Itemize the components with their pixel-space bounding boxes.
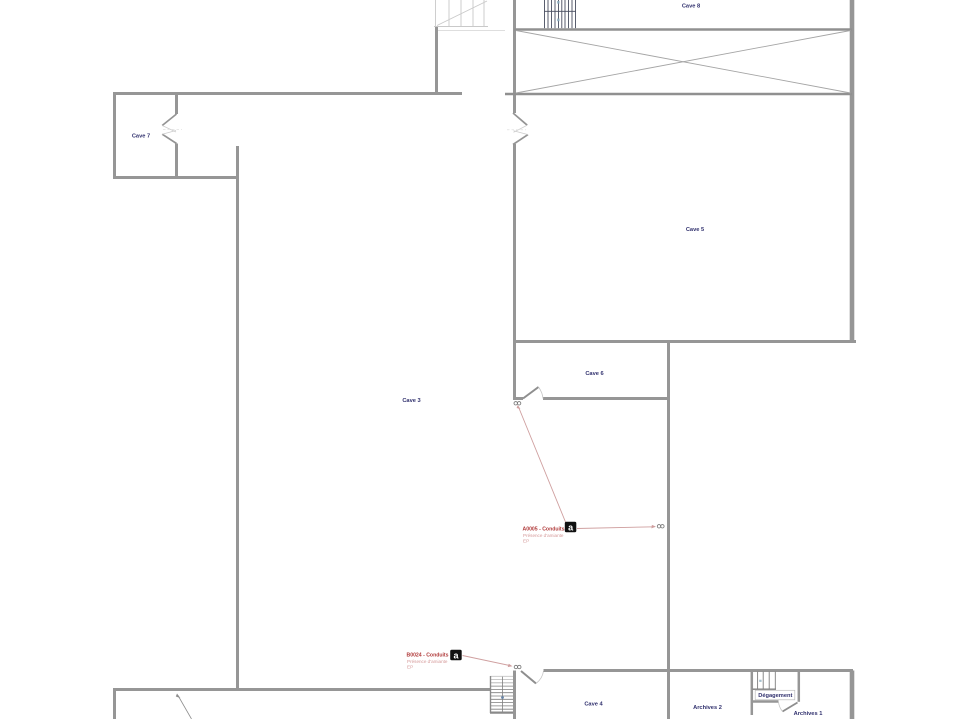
svg-text:EP: EP xyxy=(407,665,413,670)
svg-text:Cave 8: Cave 8 xyxy=(682,4,700,10)
svg-text:Archives 1: Archives 1 xyxy=(794,711,823,717)
svg-text:A0005 - Conduits: A0005 - Conduits xyxy=(523,527,565,533)
svg-text:B0024 - Conduits: B0024 - Conduits xyxy=(407,653,449,659)
svg-text:Cave 7: Cave 7 xyxy=(132,134,150,140)
svg-text:Cave 5: Cave 5 xyxy=(686,227,704,233)
svg-text:Archives 2: Archives 2 xyxy=(693,705,722,711)
svg-text:Cave 3: Cave 3 xyxy=(402,398,420,404)
svg-text:Présence d'amiante: Présence d'amiante xyxy=(523,533,564,538)
svg-text:Cave 6: Cave 6 xyxy=(585,371,603,377)
svg-text:EP: EP xyxy=(523,539,529,544)
svg-text:Cave 4: Cave 4 xyxy=(584,702,603,708)
svg-text:Dégagement: Dégagement xyxy=(758,693,792,699)
svg-text:Présence d'amiante: Présence d'amiante xyxy=(407,659,448,664)
